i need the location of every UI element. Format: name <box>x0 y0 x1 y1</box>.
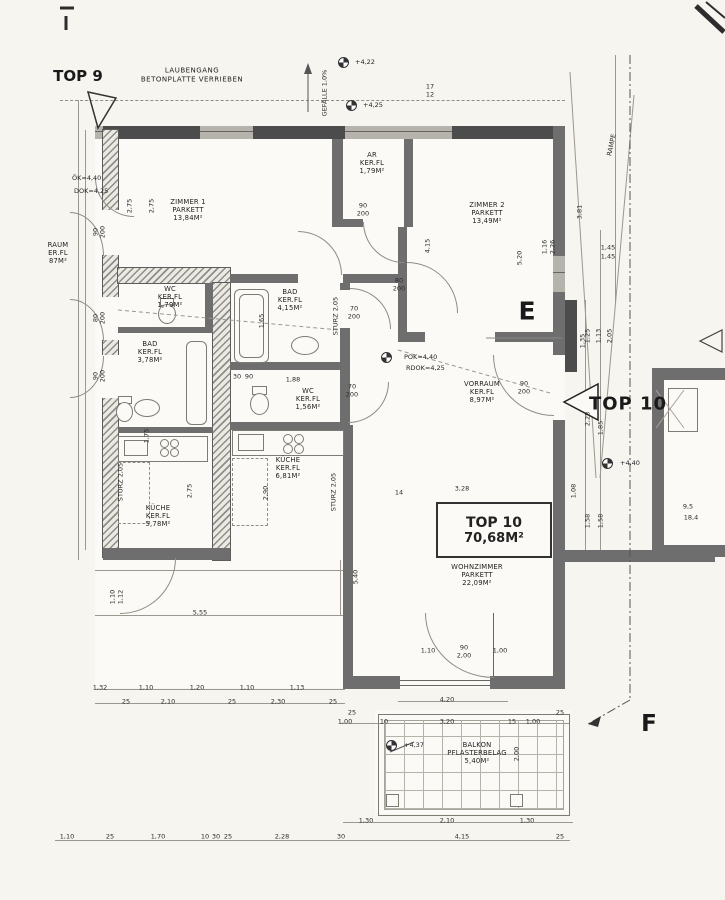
room-label-wc-top9: WCKER.FL1,79M² <box>158 285 183 309</box>
dimension-text: 4,15 <box>425 239 432 253</box>
dimension-text: 2,75 <box>187 484 194 498</box>
dimension-text: 70 <box>350 306 358 313</box>
dimension-text: 1,30 <box>359 818 373 825</box>
room-label-zimmer2: ZIMMER 2PARKETT13,49M² <box>469 201 505 225</box>
dimension-text: 80 <box>395 278 403 285</box>
dimension-text: 30 <box>212 834 220 841</box>
dimension-text: 25 <box>556 710 564 717</box>
dimension-text: 2,00 <box>514 747 521 761</box>
dimension-text: 18,4 <box>684 515 698 522</box>
dimension-text: 25 <box>106 834 114 841</box>
dimension-text: 1,58 <box>598 514 605 528</box>
room-label-vorraum: VORRAUMKER.FL8,97M² <box>464 380 500 404</box>
room-label-raum-top9-cut: RAUMER.FL87M² <box>48 241 69 265</box>
dimension-text: 25 <box>224 834 232 841</box>
level-mark-icon <box>346 100 357 111</box>
level-text: +4,37 <box>404 741 424 749</box>
dimension-text: 3,81 <box>577 205 584 219</box>
dimension-text: 1,10 <box>139 685 153 692</box>
dimension-text: 200 <box>100 226 107 238</box>
dimension-text: 14 <box>395 490 403 497</box>
level-text: ÖK=4,40 <box>72 174 101 182</box>
dimension-text: 25 <box>556 834 564 841</box>
dimension-text: 2,28 <box>275 834 289 841</box>
dimension-text: 90 <box>245 374 253 381</box>
dimension-text: 1,00 <box>338 719 352 726</box>
level-text: RDOK=4,25 <box>406 364 445 372</box>
dimension-text: 2,75 <box>149 199 156 213</box>
room-label-ar: ARKER.FL1,79M² <box>360 151 385 175</box>
dimension-text: 1,45 <box>601 254 615 261</box>
dimension-text: 1,35 <box>580 334 587 348</box>
dimension-text: STURZ 2,05 <box>333 297 340 335</box>
dimension-text: 2,05 <box>607 329 614 343</box>
dimension-text: 25 <box>228 699 236 706</box>
dimension-text: 2,90 <box>263 486 270 500</box>
dimension-text: 4,20 <box>440 697 454 704</box>
dimension-text: 1,08 <box>571 484 578 498</box>
level-text: +4,25 <box>363 101 383 109</box>
dimension-text: 200 <box>100 312 107 324</box>
dimension-text: 1,10 <box>240 685 254 692</box>
room-label-zimmer1: ZIMMER 1PARKETT13,84M² <box>170 198 206 222</box>
dimension-text: 5,55 <box>193 610 207 617</box>
dimension-text: 1,85 <box>598 421 605 435</box>
dimension-text: 25 <box>122 699 130 706</box>
dimension-text: 1,10 <box>110 590 117 604</box>
dimension-text: 15 <box>508 719 516 726</box>
dimension-text: 10 <box>201 834 209 841</box>
level-text: DOK=4,25 <box>74 187 108 195</box>
level-mark-icon <box>338 57 349 68</box>
dimension-text: 5,40 <box>353 570 360 584</box>
room-label-wc-top10: WCKER.FL1,56M² <box>296 387 321 411</box>
dimension-text: 9,5 <box>683 504 693 511</box>
level-mark-icon <box>602 458 613 469</box>
dimension-text: 1,32 <box>93 685 107 692</box>
dimension-text: 2,10 <box>161 699 175 706</box>
dimension-text: 1,58 <box>585 514 592 528</box>
dimension-text: 1,13 <box>290 685 304 692</box>
dimension-text: 1,70 <box>151 834 165 841</box>
room-label-balkon: BALKONPFLASTERBELAG5,40M² <box>447 741 506 765</box>
dimension-text: 90 <box>359 203 367 210</box>
level-text: +4,22 <box>355 58 375 66</box>
room-label-wohnzimmer: WOHNZIMMERPARKETT22,09M² <box>451 563 503 587</box>
dimension-text: 200 <box>348 314 360 321</box>
level-mark-icon <box>381 352 392 363</box>
dimension-text: 70 <box>348 384 356 391</box>
level-text: +4,40 <box>620 459 640 467</box>
dimension-text: 25 <box>329 699 337 706</box>
dimension-text: 25 <box>348 710 356 717</box>
dimension-text: 1,10 <box>421 648 435 655</box>
dimension-text: 1,45 <box>601 245 615 252</box>
dimension-text: 1,30 <box>520 818 534 825</box>
dimension-text: 2,26 <box>550 240 557 254</box>
dimension-text: 2,10 <box>440 818 454 825</box>
dimension-text: 1,20 <box>190 685 204 692</box>
dimension-text: 3,28 <box>455 486 469 493</box>
dimension-text: 200 <box>357 211 369 218</box>
level-mark-icon <box>386 740 397 751</box>
dimension-text: 1,10 <box>60 834 74 841</box>
room-label-bad-top10: BADKER.FL4,15M² <box>278 288 303 312</box>
annotation-layer: ZIMMER 1PARKETT13,84M²ARKER.FL1,79M²ZIMM… <box>0 0 725 900</box>
dimension-text: 200 <box>393 286 405 293</box>
dimension-text: 200 <box>518 389 530 396</box>
dimension-text: 1,00 <box>526 719 540 726</box>
dimension-text: 1,75 <box>144 429 151 443</box>
dimension-text: 30 <box>233 374 241 381</box>
room-label-kueche-top10: KÜCHEKER.FL6,81M² <box>276 456 301 480</box>
dimension-text: 1,12 <box>118 590 125 604</box>
dimension-text: 200 <box>346 392 358 399</box>
dimension-text: 200 <box>100 370 107 382</box>
dimension-text: 1,00 <box>493 648 507 655</box>
dimension-text: STURZ 2,05 <box>118 463 125 501</box>
dimension-text: 4,15 <box>455 834 469 841</box>
dimension-text: 1,65 <box>259 314 266 328</box>
dimension-text: 2,00 <box>457 653 471 660</box>
dimension-text: 1,16 <box>542 240 549 254</box>
floor-plan-sheet: TOP 9 LAUBENGANG BETONPLATTE VERRIEBEN G… <box>0 0 725 900</box>
dimension-text: STURZ 2,05 <box>331 473 338 511</box>
dimension-text: 2,30 <box>271 699 285 706</box>
dimension-text: 90 <box>520 381 528 388</box>
dimension-text: 10 <box>380 719 388 726</box>
dimension-text: 17 <box>426 84 434 91</box>
dimension-text: 2,28 <box>585 412 592 426</box>
dimension-text: 1,13 <box>596 329 603 343</box>
room-label-bad-top9: BADKER.FL3,78M² <box>138 340 163 364</box>
dimension-text: 5,20 <box>517 251 524 265</box>
room-label-kueche-top9: KÜCHEKER.FL5,78M² <box>146 504 171 528</box>
dimension-text: 3,20 <box>440 719 454 726</box>
dimension-text: 12 <box>426 92 434 99</box>
level-text: POK=4,40 <box>404 353 437 361</box>
dimension-text: 90 <box>460 645 468 652</box>
dimension-text: 30 <box>337 834 345 841</box>
dimension-text: 1,88 <box>286 377 300 384</box>
dimension-text: 2,75 <box>127 199 134 213</box>
